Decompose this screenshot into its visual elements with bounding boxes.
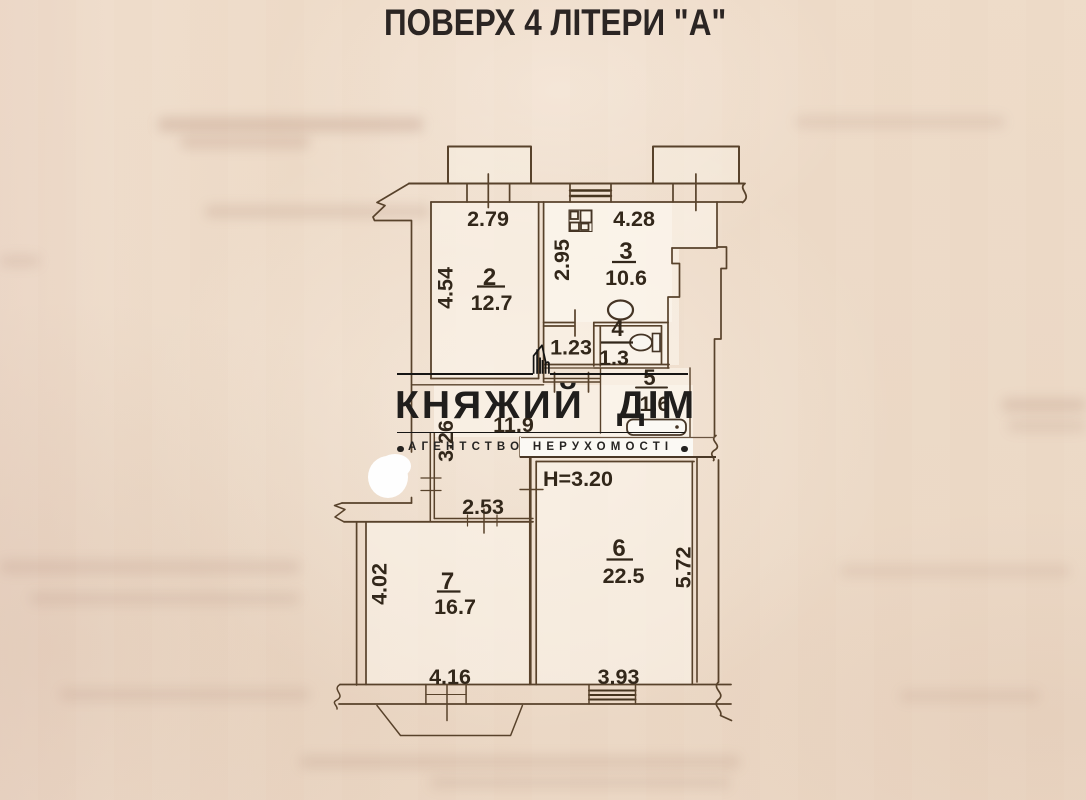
svg-text:10.6: 10.6 [605, 266, 647, 290]
svg-text:22.5: 22.5 [603, 564, 645, 588]
svg-text:4.54: 4.54 [434, 267, 458, 309]
svg-text:1.3: 1.3 [599, 346, 629, 370]
svg-text:5.72: 5.72 [672, 547, 696, 589]
svg-text:4.16: 4.16 [429, 665, 471, 689]
svg-text:4: 4 [611, 316, 624, 341]
svg-text:2.79: 2.79 [467, 207, 509, 231]
svg-text:H=3.20: H=3.20 [543, 467, 613, 491]
svg-text:3.93: 3.93 [598, 665, 640, 689]
svg-text:2.95: 2.95 [550, 239, 574, 281]
svg-text:4.28: 4.28 [613, 207, 655, 231]
svg-text:6: 6 [612, 535, 625, 562]
svg-text:2.53: 2.53 [462, 495, 504, 519]
svg-text:12.7: 12.7 [471, 291, 513, 315]
svg-text:16.7: 16.7 [434, 595, 476, 619]
svg-text:4.02: 4.02 [368, 563, 392, 605]
